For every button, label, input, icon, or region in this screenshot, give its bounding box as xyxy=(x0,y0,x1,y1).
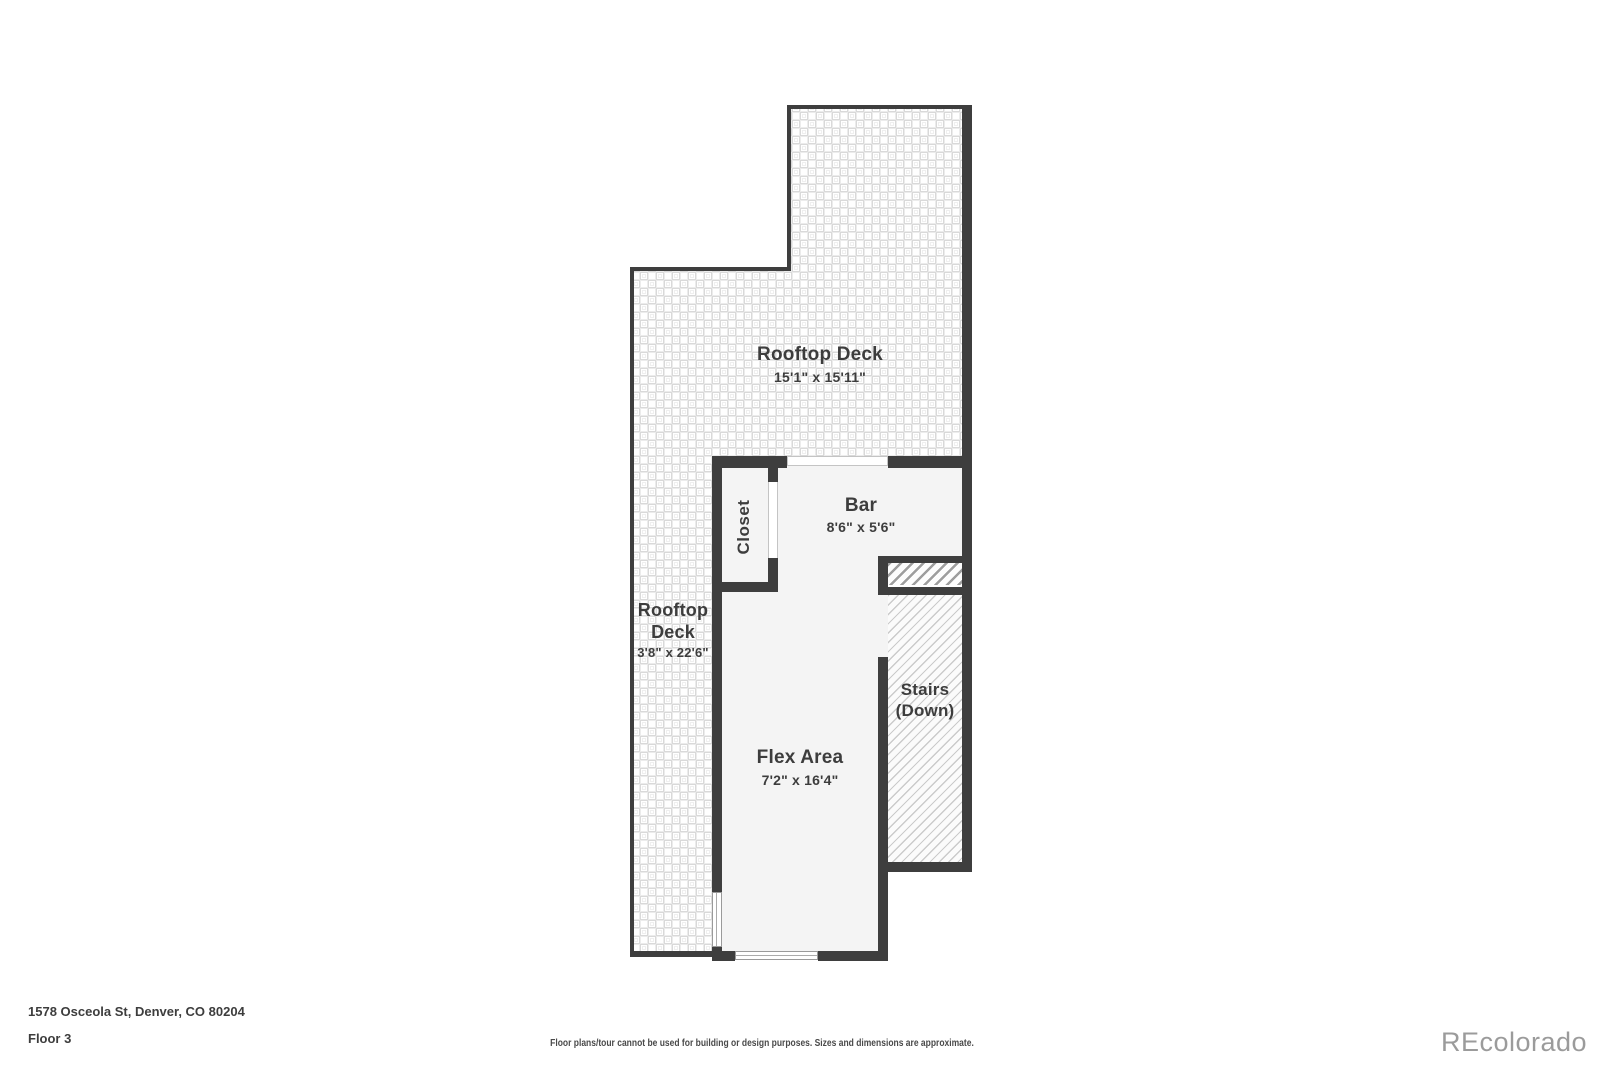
label-bar: Bar 8'6" x 5'6" xyxy=(827,494,896,535)
room-name-line1: Stairs xyxy=(896,679,955,700)
deck-wall-top xyxy=(787,105,972,109)
stairs-landing-wall xyxy=(878,587,962,595)
room-dimensions: 8'6" x 5'6" xyxy=(827,519,896,535)
floorplan: Rooftop Deck 15'1" x 15'11" Rooftop Deck… xyxy=(0,0,1600,1066)
flex-window-bottom xyxy=(735,951,818,960)
stairs-wall-bottom xyxy=(878,862,972,872)
label-stairs: Stairs (Down) xyxy=(896,679,955,721)
stairs-wall-top xyxy=(878,556,972,563)
stairs-landing-hatch xyxy=(888,563,962,585)
room-name-line1: Rooftop xyxy=(637,599,709,621)
flex-wall-bottom-right xyxy=(818,951,888,961)
deck-wall-upper-left xyxy=(787,105,791,271)
property-address: 1578 Osceola St, Denver, CO 80204 xyxy=(28,1004,245,1019)
deck-wall-left xyxy=(630,267,634,957)
floorplan-page: Rooftop Deck 15'1" x 15'11" Rooftop Deck… xyxy=(0,0,1600,1066)
room-dimensions: 15'1" x 15'11" xyxy=(757,369,883,385)
bar-top-wall-right xyxy=(888,456,962,468)
disclaimer-text: Floor plans/tour cannot be used for buil… xyxy=(550,1038,974,1049)
room-name: Bar xyxy=(827,494,896,517)
room-floor-bar-right xyxy=(888,466,962,556)
flex-wall-bottom-left xyxy=(712,951,735,961)
closet-door-opening xyxy=(768,482,778,558)
label-rooftop-deck-top: Rooftop Deck 15'1" x 15'11" xyxy=(757,343,883,385)
closet-wall-bottom xyxy=(712,582,778,592)
room-name: Rooftop Deck xyxy=(757,343,883,366)
label-flex-area: Flex Area 7'2" x 16'4" xyxy=(757,746,844,788)
stairs-shaft-hatch xyxy=(888,595,962,862)
exterior-wall-right xyxy=(962,105,972,872)
closet-wall-right-upper xyxy=(768,456,778,482)
room-name: Flex Area xyxy=(757,746,844,769)
deck-wall-step-top xyxy=(630,267,791,271)
sliding-door-deck xyxy=(787,456,888,466)
interior-wall-left-upper xyxy=(712,456,722,892)
recolorado-watermark: REcolorado xyxy=(1441,1027,1587,1058)
room-dimensions: 3'8" x 22'6" xyxy=(637,645,709,660)
room-name-line2: Deck xyxy=(637,621,709,643)
flex-window-left xyxy=(712,892,722,947)
stairs-wall-left xyxy=(878,657,888,961)
floor-label: Floor 3 xyxy=(28,1031,71,1046)
deck-wall-bottom xyxy=(630,951,716,957)
label-closet: Closet xyxy=(734,500,754,555)
room-dimensions: 7'2" x 16'4" xyxy=(757,772,844,788)
room-name-line2: (Down) xyxy=(896,700,955,721)
label-rooftop-deck-left: Rooftop Deck 3'8" x 22'6" xyxy=(637,599,709,660)
